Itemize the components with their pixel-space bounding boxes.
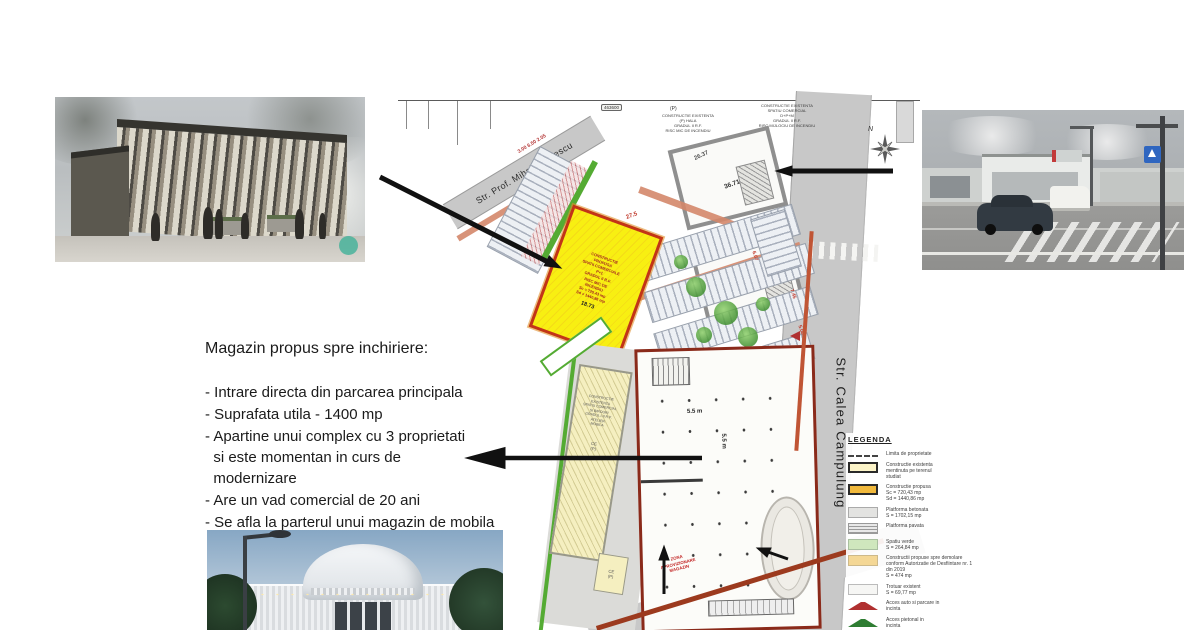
ce-label: CE (P) bbox=[590, 441, 597, 452]
plaza bbox=[55, 236, 365, 262]
building-window bbox=[930, 176, 970, 198]
property-line-swatch bbox=[848, 455, 878, 457]
tree bbox=[738, 327, 758, 347]
dimension-label: 5.5 m bbox=[720, 433, 726, 448]
listing-title: Magazin propus spre inchiriere: bbox=[205, 340, 565, 358]
plan-frame-tick bbox=[428, 101, 429, 129]
crossing-sign bbox=[1144, 146, 1161, 163]
crossing-sign-glyph bbox=[1148, 149, 1156, 157]
traffic-pole-arm bbox=[1136, 124, 1178, 128]
legend-item: Acces pietonal in incinta bbox=[848, 617, 990, 629]
building-wing bbox=[71, 145, 129, 246]
plan-frame-tick bbox=[457, 101, 458, 145]
flyer-page: 463600 (P) Str. Calea Campulung Str. Gen… bbox=[0, 0, 1200, 630]
listing-bullet: - Apartine unui complex cu 3 proprietati… bbox=[205, 426, 565, 489]
legend-item: Acces auto si parcare in incinta bbox=[848, 600, 990, 612]
green-space-swatch bbox=[848, 539, 878, 550]
car-wheel bbox=[1032, 224, 1043, 235]
hatched-annex bbox=[736, 160, 775, 206]
tree bbox=[696, 327, 712, 343]
existing-commercial-label: CONSTRUCTIE EXISTENTA SPATIU COMERCIAL D… bbox=[730, 103, 844, 128]
concrete-platform-swatch bbox=[848, 507, 878, 518]
tree bbox=[714, 301, 738, 325]
street-lamp bbox=[1090, 128, 1093, 206]
tree bbox=[449, 568, 503, 630]
plan-frame-tick bbox=[490, 101, 491, 129]
car-roof bbox=[991, 195, 1033, 207]
legend-item: Constructie propusa Sc = 720,43 mp Sd = … bbox=[848, 484, 990, 502]
existing-strip-label: CONSTRUCTIE EXISTENTA SPATIU COMERCIAL S… bbox=[580, 393, 618, 430]
proposed-building-label: CONSTRUCTIE PROPUSA SPATII COMERCIALE P+… bbox=[571, 249, 623, 305]
white-van bbox=[1050, 186, 1090, 211]
watermark-badge bbox=[339, 236, 358, 255]
legend-item: Constructie existenta mentinuta pe teren… bbox=[848, 462, 990, 480]
tree bbox=[674, 255, 688, 269]
tree bbox=[756, 297, 770, 311]
tree bbox=[207, 574, 257, 630]
dimension-label: 18.73 bbox=[580, 300, 595, 310]
legend-title: LEGENDA bbox=[848, 435, 990, 444]
plan-frame-tick bbox=[406, 101, 407, 129]
legend-item: Constructii propuse spre demolare confor… bbox=[848, 555, 990, 579]
plan-storey-label: (P) bbox=[670, 106, 677, 112]
roof-sign bbox=[1052, 150, 1082, 162]
entrance-column bbox=[377, 602, 380, 630]
crosswalk bbox=[808, 241, 879, 262]
access-arrow-red bbox=[790, 331, 800, 341]
entrance-column bbox=[362, 602, 365, 630]
legend-item: Limita de proprietate bbox=[848, 451, 990, 457]
legend-item: Spatiu verde S = 264,84 mp bbox=[848, 539, 990, 551]
person-silhouette bbox=[203, 207, 213, 239]
traffic-pole bbox=[1160, 116, 1165, 270]
low-buildings bbox=[1100, 172, 1184, 206]
proposed-building-swatch bbox=[848, 484, 878, 495]
listing-bullet: - Intrare directa din parcarea principal… bbox=[205, 382, 565, 403]
dark-car bbox=[977, 203, 1053, 231]
compass-rose: N bbox=[866, 128, 902, 170]
lane-marking bbox=[922, 228, 1184, 230]
legend-item: Platforma pavata bbox=[848, 523, 990, 534]
car-access-red-arrow-icon bbox=[848, 602, 878, 610]
listing-description: Magazin propus spre inchiriere: - Intrar… bbox=[205, 340, 565, 534]
listing-bullet: - Are un vad comercial de 20 ani bbox=[205, 490, 565, 511]
plan-coordinate-label: 463600 bbox=[601, 104, 622, 111]
existing-building-swatch bbox=[848, 462, 878, 473]
demolition-swatch bbox=[848, 555, 878, 566]
legend: LEGENDA Limita de proprietate Constructi… bbox=[846, 433, 992, 630]
ce-small-building: CE (P) bbox=[593, 553, 629, 595]
dimension-label: 5.5 m bbox=[687, 409, 702, 415]
car-wheel bbox=[985, 224, 996, 235]
paved-platform-swatch bbox=[848, 523, 878, 534]
compass-north-label: N bbox=[868, 126, 873, 133]
legend-item: Platforma betonata S = 1702,15 mp bbox=[848, 507, 990, 519]
dimension-label: 27.5 bbox=[625, 211, 638, 221]
photo-street-view bbox=[922, 110, 1184, 270]
listing-bullet: - Suprafata utila - 1400 mp bbox=[205, 404, 565, 425]
listing-bullet: - Se afla la parterul unui magazin de mo… bbox=[205, 512, 565, 533]
cloud bbox=[932, 116, 1052, 156]
loading-dock bbox=[708, 598, 794, 616]
stairs bbox=[652, 357, 691, 386]
rotunda-inner bbox=[769, 506, 805, 591]
lamp-pole bbox=[243, 536, 247, 630]
sidewalk-swatch bbox=[848, 584, 878, 595]
person-silhouette bbox=[151, 213, 160, 241]
photo-furniture-store-render bbox=[207, 530, 503, 630]
entrance bbox=[335, 602, 391, 630]
person-silhouette bbox=[215, 209, 223, 239]
person-silhouette bbox=[295, 209, 304, 239]
photo-building-render bbox=[55, 97, 365, 262]
person-silhouette bbox=[319, 213, 326, 239]
entrance-column bbox=[347, 602, 350, 630]
person-silhouette bbox=[241, 213, 249, 239]
legend-item: Trotuar existent S = 69,77 mp bbox=[848, 584, 990, 596]
facade-lights bbox=[255, 590, 455, 602]
pedestrian-access-green-arrow-icon bbox=[848, 619, 878, 627]
compass-star-icon bbox=[870, 134, 900, 164]
street-lamp-arm bbox=[1070, 126, 1094, 129]
tree bbox=[686, 277, 706, 297]
ce-label: CE (P) bbox=[607, 569, 614, 580]
lane-marking bbox=[922, 252, 1184, 255]
